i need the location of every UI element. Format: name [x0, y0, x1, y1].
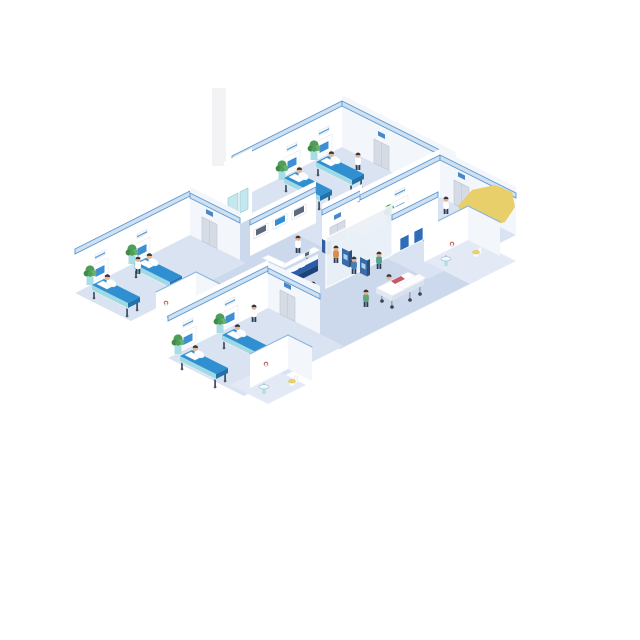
illustration-canvas	[0, 0, 640, 640]
cabinet-glass-pane	[240, 188, 248, 213]
hospital-ward-illustration	[0, 0, 640, 640]
faint-column	[212, 88, 226, 166]
